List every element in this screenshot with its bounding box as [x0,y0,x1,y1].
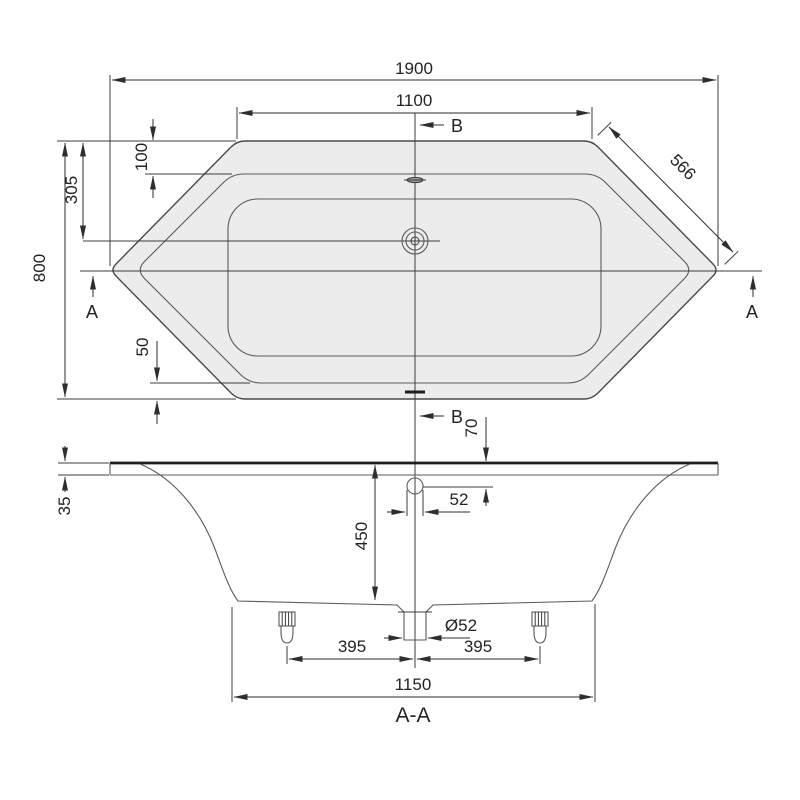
ext-line [725,251,739,264]
dim-50-label: 50 [133,338,152,357]
dim-395-left-label: 395 [338,637,366,656]
marker-b-top-label: B [451,116,463,136]
dim-35-label: 35 [55,497,74,516]
dim-395-right-label: 395 [464,637,492,656]
dim-70-label: 70 [462,419,481,438]
marker-a-right-label: A [746,302,758,322]
section-view: 35 70 52 450 Ø52 395 395 1150 A-A [55,417,718,727]
dim-1150-label: 1150 [395,675,432,694]
ext-line [598,122,612,135]
dim-drain52-label: Ø52 [445,616,477,635]
marker-a-left-label: A [86,302,98,322]
bathtub-technical-drawing: 1900 1100 B 566 800 305 100 50 A A B [0,0,800,800]
foot-left [279,612,295,643]
dim-100-label: 100 [132,143,151,171]
dim-450-label: 450 [352,522,371,550]
dim-1900-label: 1900 [395,59,433,78]
section-title: A-A [395,704,430,727]
top-view: 1900 1100 B 566 800 305 100 50 A A B [30,59,762,668]
dim-566-label: 566 [666,150,699,183]
dim-305-label: 305 [62,176,81,204]
dim-52-label: 52 [450,490,469,509]
drawing-page: 1900 1100 B 566 800 305 100 50 A A B [0,0,800,800]
foot-right [532,612,548,643]
dim-1100-label: 1100 [396,91,433,110]
dim-800-label: 800 [30,254,49,282]
